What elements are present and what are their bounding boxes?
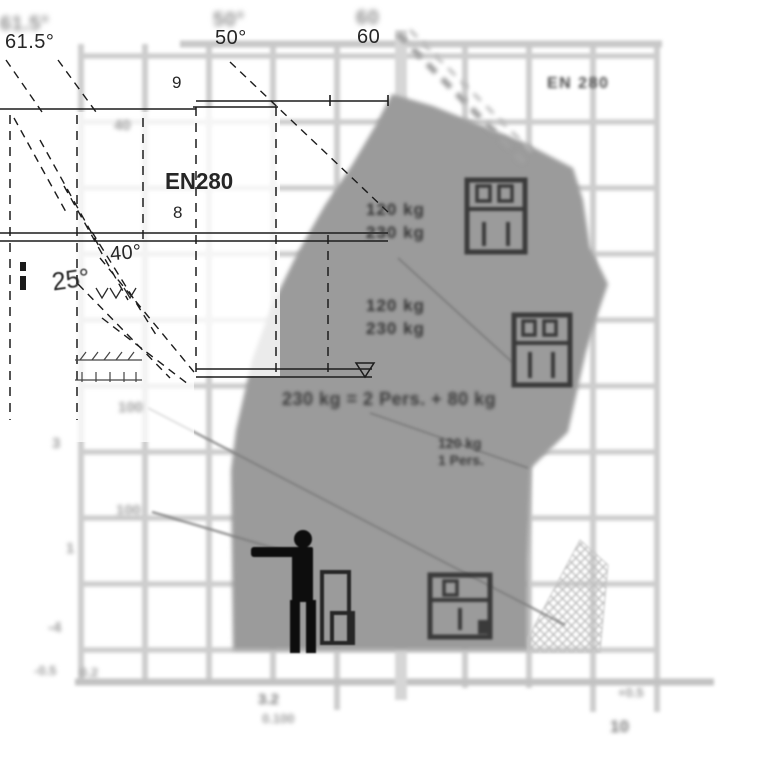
zone-middle-load-2: 230 kg — [366, 320, 425, 337]
zone-upper-load-2: 230 kg — [366, 224, 425, 241]
zone-lower-load-2: 1 Pers. — [438, 453, 484, 467]
ghost-scale-60: 60 — [356, 8, 379, 28]
bottom-axis-label: +0.5 — [618, 686, 644, 699]
bottom-axis-label: 0.100 — [262, 712, 295, 725]
height-label-8: 8 — [173, 204, 182, 221]
height-line-9 — [0, 95, 388, 109]
drawing-whitespace — [0, 108, 280, 442]
angle-label-40: 40° — [109, 242, 142, 265]
en280-badge: EN 280 — [547, 76, 609, 92]
level-marker — [20, 262, 26, 271]
height-label-9: 9 — [172, 74, 181, 91]
diagram-canvas — [0, 0, 768, 768]
zone-upper-load-1: 120 kg — [366, 201, 425, 218]
left-margin-label: 0.2 — [80, 666, 98, 679]
white-area-rect — [194, 108, 280, 376]
bottom-axis-label: 10 — [610, 718, 629, 735]
left-margin-label: 3 — [52, 436, 60, 451]
white-area-left — [0, 112, 194, 442]
level-marker — [20, 276, 26, 290]
left-margin-label: 100 — [118, 400, 143, 415]
angle-label-25: 25° — [50, 265, 91, 295]
capacity-note: 230 kg = 2 Pers. + 80 kg — [282, 390, 496, 408]
standard-label-en280: EN280 — [165, 170, 233, 193]
zone-lower-load-1: 120 kg — [438, 436, 482, 450]
scale-label-60: 60 — [357, 27, 380, 47]
person-head — [294, 530, 312, 548]
person-leg — [290, 600, 300, 653]
work-envelope-diagram: 61.5° 61.5° 50° 50° 60 60 9 EN280 8 40° … — [0, 0, 768, 768]
left-margin-label: -4 — [48, 620, 61, 635]
left-margin-label: 100 — [116, 503, 141, 518]
left-margin-label: 1 — [66, 541, 74, 556]
hatch-area — [528, 540, 608, 652]
basket-detail — [478, 620, 490, 634]
restricted-zone-hatch — [528, 540, 608, 652]
person-leg — [306, 600, 316, 653]
angle-label-61-5: 61.5° — [5, 32, 54, 52]
bottom-axis-label: 3.2 — [258, 692, 279, 707]
zone-middle-load-1: 120 kg — [366, 297, 425, 314]
angle-label-50: 50° — [215, 28, 247, 48]
left-margin-label: 40 — [114, 118, 131, 133]
person-arm — [251, 547, 296, 557]
left-margin-label: -0.5 — [34, 664, 56, 677]
